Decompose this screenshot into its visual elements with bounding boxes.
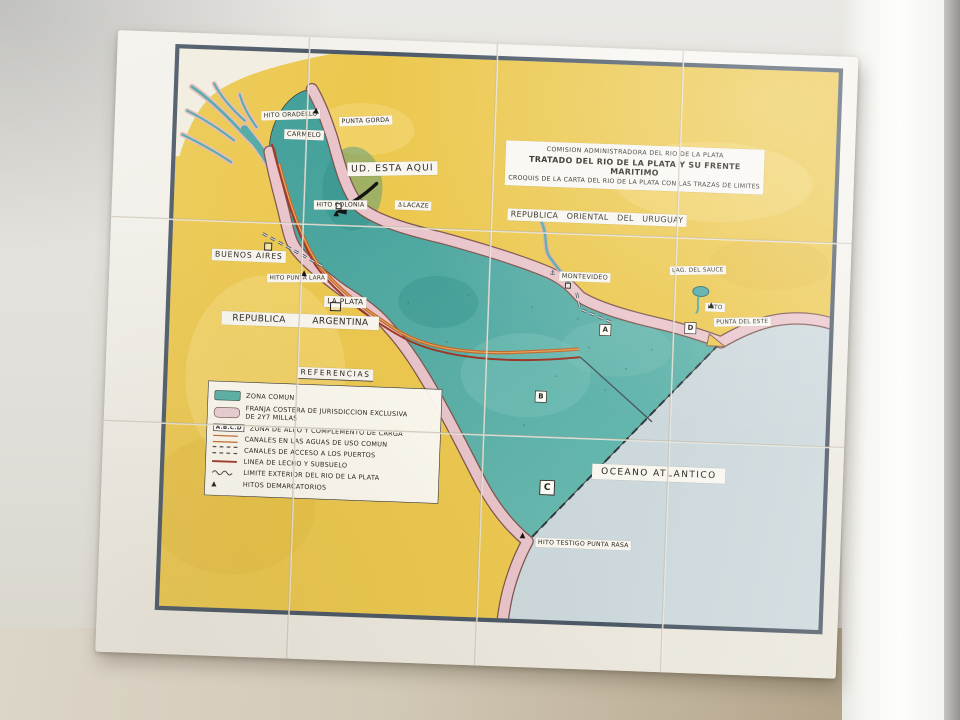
zone-marker-b: B bbox=[535, 391, 547, 403]
label-hito-punta-lara: HITO PUNTA LARA bbox=[267, 274, 327, 283]
city-mark-colonia bbox=[336, 203, 342, 209]
wavy-limit-swatch bbox=[212, 469, 237, 476]
anchor-icon-montevideo: ⚓ bbox=[549, 270, 556, 277]
zona-comun-swatch bbox=[214, 390, 240, 401]
zone-marker-c: C bbox=[539, 480, 555, 496]
hito-triangle-punta-del-este: ▲ bbox=[708, 302, 714, 310]
city-mark-montevideo bbox=[565, 283, 571, 289]
label-punta-del-este: PUNTA DEL ESTE bbox=[714, 317, 771, 327]
canal-line-swatch bbox=[213, 435, 238, 443]
label-montevideo: MONTEVIDEO bbox=[559, 271, 611, 283]
dashed-channel-swatch bbox=[212, 446, 237, 454]
hito-triangle-punta-rasa: ▲ bbox=[520, 532, 526, 540]
label-punta-gorda: PUNTA GORDA bbox=[339, 115, 392, 126]
hito-triangle-punta-gorda: ▲ bbox=[313, 107, 319, 115]
wall-right-lit bbox=[842, 0, 946, 720]
hito-triangle-swatch: ▲ bbox=[211, 479, 217, 487]
city-mark-la-plata bbox=[330, 302, 341, 311]
zone-marker-d: D bbox=[684, 322, 696, 334]
label-you-are-here: UD. ESTA AQUI bbox=[347, 161, 437, 176]
zone-marker-a: A bbox=[599, 324, 611, 336]
lecho-line-swatch bbox=[212, 460, 237, 463]
label-lacaze: ⚓LACAZE bbox=[395, 200, 432, 211]
hito-triangle-colonia: ▲ bbox=[333, 210, 339, 218]
label-hito-oradello: HITO ORADELLO bbox=[261, 109, 320, 120]
photo-of-tile-mural-map: COMISION ADMINISTRADORA DEL RIO DE LA PL… bbox=[0, 0, 960, 720]
franja-costera-swatch bbox=[214, 407, 240, 418]
legend-box: ZONA COMUN FRANJA COSTERA DE JURISDICCIO… bbox=[204, 381, 442, 504]
city-mark-buenos-aires bbox=[264, 243, 272, 251]
map-title-box: COMISION ADMINISTRADORA DEL RIO DE LA PL… bbox=[505, 140, 765, 194]
wall-right-corner bbox=[944, 0, 960, 720]
ceramic-tile-mural-panel: COMISION ADMINISTRADORA DEL RIO DE LA PL… bbox=[95, 30, 858, 679]
label-laguna-del-sauce: LAG. DEL SAUCE bbox=[670, 265, 726, 275]
label-carmelo: CARMELO bbox=[284, 129, 324, 140]
